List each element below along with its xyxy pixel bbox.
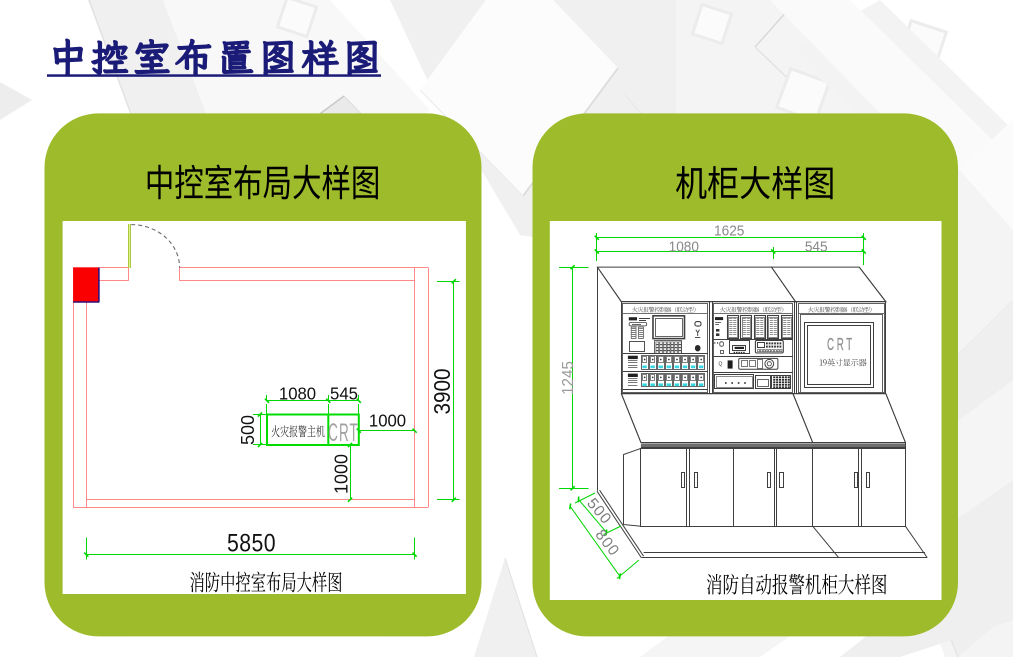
svg-text:545: 545: [805, 239, 828, 256]
svg-text:1000: 1000: [369, 410, 406, 431]
svg-text:1245: 1245: [560, 361, 577, 395]
svg-text:1000: 1000: [332, 454, 352, 494]
svg-text:CRT: CRT: [328, 420, 359, 447]
svg-text:5850: 5850: [227, 529, 276, 557]
svg-text:500: 500: [238, 415, 258, 445]
svg-text:1080: 1080: [669, 239, 699, 256]
svg-text:1080: 1080: [279, 383, 316, 404]
svg-text:3900: 3900: [429, 368, 455, 414]
svg-text:CRT: CRT: [827, 335, 855, 355]
svg-text:545: 545: [330, 383, 358, 404]
svg-text:1625: 1625: [714, 223, 744, 240]
svg-text:Q: Q: [719, 362, 723, 368]
